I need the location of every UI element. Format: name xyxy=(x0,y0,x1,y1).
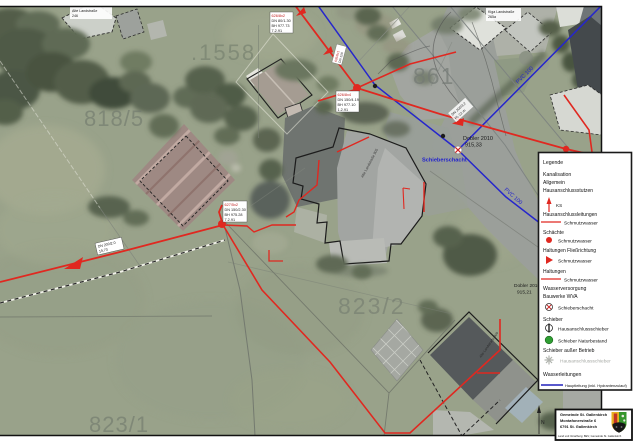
svg-text:Alte Landstraße: Alte Landstraße xyxy=(72,9,97,13)
svg-text:Schmutzwasser: Schmutzwasser xyxy=(558,239,592,245)
svg-text:7.2.91: 7.2.91 xyxy=(225,218,236,222)
svg-text:Schieberschacht: Schieberschacht xyxy=(558,306,594,312)
svg-text:1.2.91: 1.2.91 xyxy=(338,108,349,112)
svg-text:N: N xyxy=(541,420,545,426)
svg-text:861: 861 xyxy=(413,63,454,89)
svg-text:915,21: 915,21 xyxy=(517,290,532,296)
svg-text:KS: KS xyxy=(556,203,562,208)
svg-text:6791 St. Gallenkirch: 6791 St. Gallenkirch xyxy=(560,424,598,429)
svg-text:915,33: 915,33 xyxy=(465,143,482,149)
svg-text:BH 975.28: BH 975.28 xyxy=(225,213,243,217)
svg-text:Allgemein: Allgemein xyxy=(543,180,565,186)
svg-text:Hausanschlussschieber: Hausanschlussschieber xyxy=(558,327,609,333)
svg-text:Haltungen: Haltungen xyxy=(543,269,566,275)
svg-text:Hausanschlussschieber: Hausanschlussschieber xyxy=(560,359,611,365)
svg-text:Wasserleitungen: Wasserleitungen xyxy=(543,372,582,378)
svg-text:Schächte: Schächte xyxy=(543,230,564,236)
svg-text:Hausanschlussstutzen: Hausanschlussstutzen xyxy=(543,188,593,194)
svg-text:Schmutzwasser: Schmutzwasser xyxy=(564,221,598,227)
svg-text:DN 150/4.19: DN 150/4.19 xyxy=(338,98,359,102)
svg-text:Legende: Legende xyxy=(543,160,563,166)
svg-text:Bauwerke WVA: Bauwerke WVA xyxy=(543,294,578,300)
svg-text:626/8x4: 626/8x4 xyxy=(338,93,352,97)
svg-text:Schieber Naturbestand: Schieber Naturbestand xyxy=(558,339,607,345)
svg-text:DN 80/1.30: DN 80/1.30 xyxy=(272,19,291,23)
svg-text:626/8x2: 626/8x2 xyxy=(272,14,286,18)
svg-text:Montafonerstraße 6: Montafonerstraße 6 xyxy=(560,418,597,423)
svg-text:.1558: .1558 xyxy=(191,40,256,65)
svg-text:265a: 265a xyxy=(488,15,496,19)
svg-text:Schmutzwasser: Schmutzwasser xyxy=(564,278,598,284)
svg-text:BH 977.73: BH 977.73 xyxy=(272,24,290,28)
svg-text:Kiga Landstraße: Kiga Landstraße xyxy=(488,10,514,14)
svg-text:DN 150/2.30: DN 150/2.30 xyxy=(225,208,246,212)
svg-text:Schieber: Schieber xyxy=(543,317,563,323)
svg-text:Kanalisation: Kanalisation xyxy=(543,172,571,178)
svg-text:BH 977.10: BH 977.10 xyxy=(338,103,356,107)
svg-text:7.2.91: 7.2.91 xyxy=(272,29,283,33)
svg-text:Schieber außer Betrieb: Schieber außer Betrieb xyxy=(543,348,595,354)
svg-text:823/1: 823/1 xyxy=(89,412,149,437)
svg-text:Gemeinde St. Gallenkirch: Gemeinde St. Gallenkirch xyxy=(560,412,608,417)
svg-text:246: 246 xyxy=(72,14,78,18)
svg-text:Dobler 2010: Dobler 2010 xyxy=(514,283,540,289)
svg-text:823/2: 823/2 xyxy=(338,293,406,319)
svg-text:Hausanschlussleitungen: Hausanschlussleitungen xyxy=(543,212,597,218)
svg-text:Haltungen Fließrichtung: Haltungen Fließrichtung xyxy=(543,248,596,254)
svg-text:Land und Vorarlberg; BEV; Geme: Land und Vorarlberg; BEV; Gemeinde St. G… xyxy=(558,434,622,438)
svg-text:Hauptleitung (inkl. Hydrantenz: Hauptleitung (inkl. Hydrantenzulauf) xyxy=(565,383,628,388)
svg-text:Dobler 2010: Dobler 2010 xyxy=(463,136,493,142)
svg-text:Wasserversorgung: Wasserversorgung xyxy=(543,286,586,292)
svg-text:Schieberschacht: Schieberschacht xyxy=(422,158,467,164)
svg-text:627/5x2: 627/5x2 xyxy=(225,203,239,207)
svg-text:818/5: 818/5 xyxy=(84,106,144,131)
svg-text:Schmutzwasser: Schmutzwasser xyxy=(558,259,592,265)
